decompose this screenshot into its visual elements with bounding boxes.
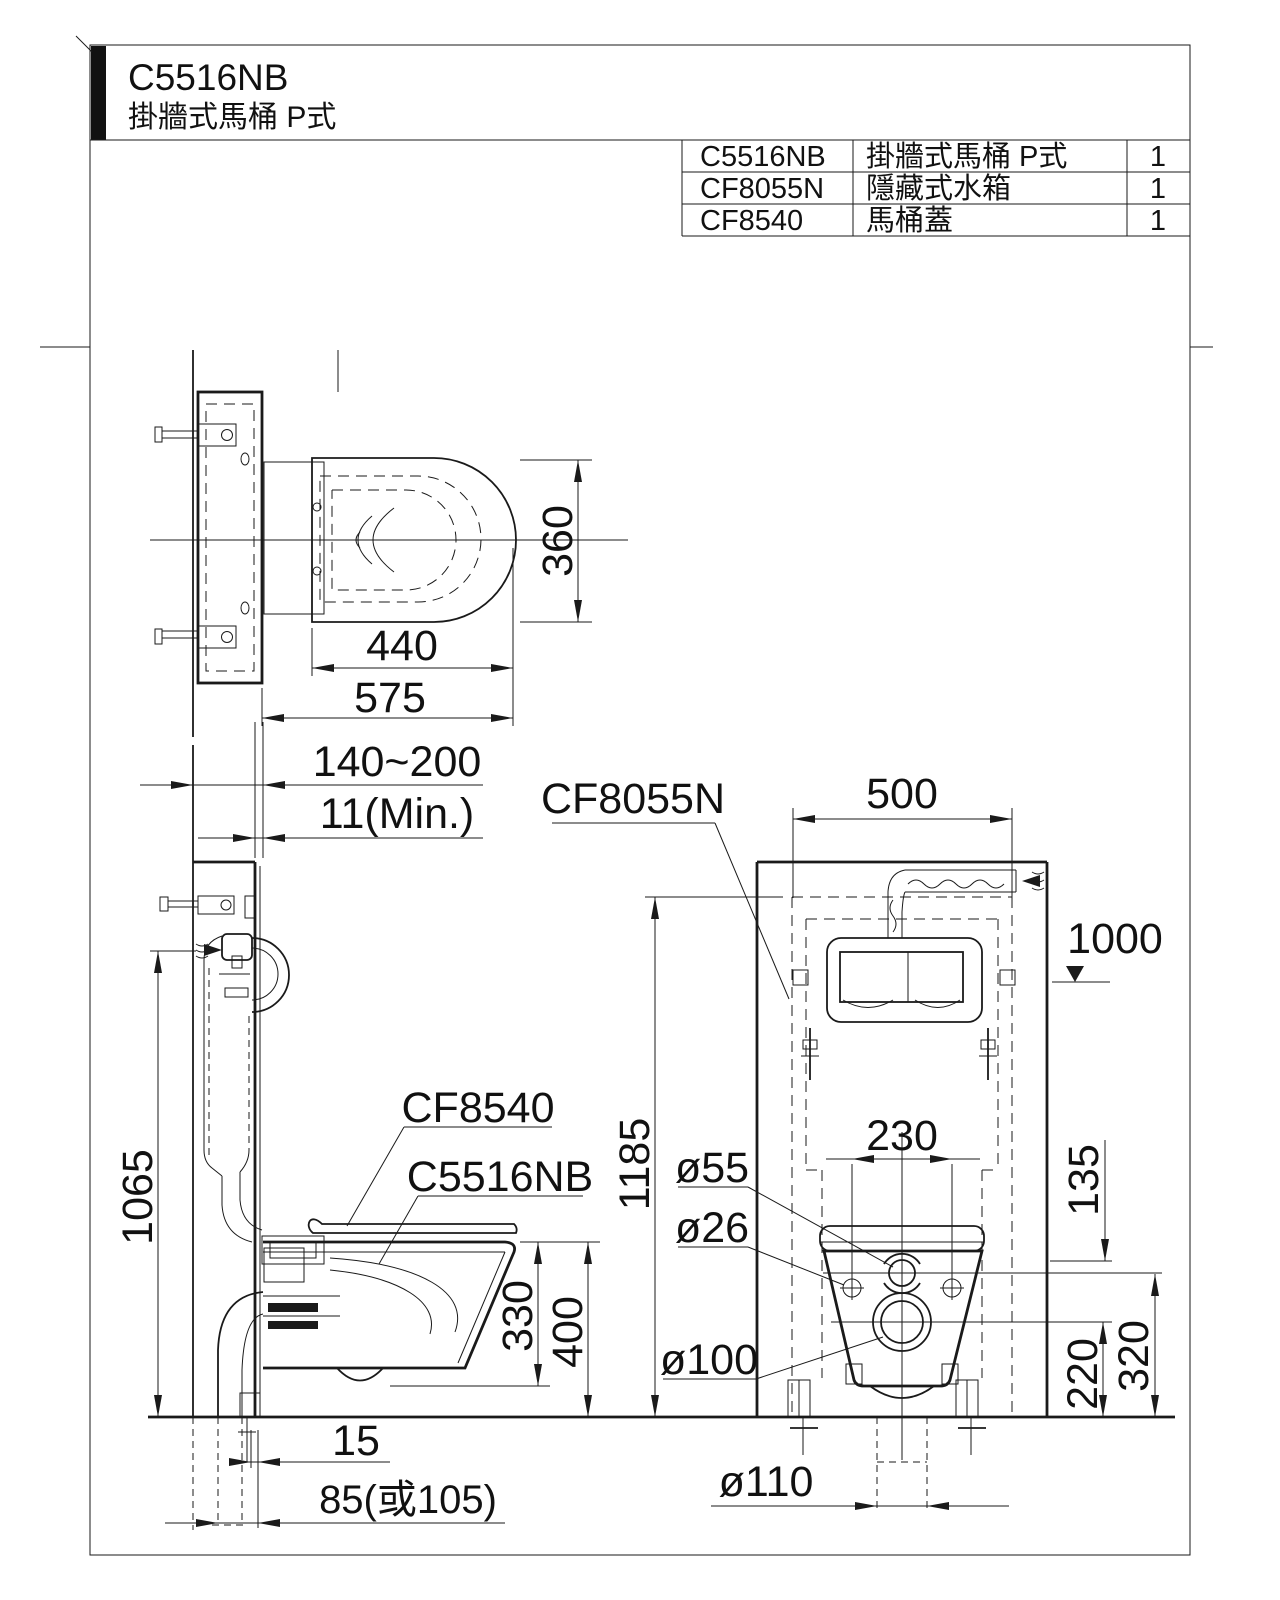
dim-bowl-height: 330 — [494, 1280, 542, 1352]
technical-drawing: C5516NB 掛牆式馬桶 P式 C5516NB 掛牆式馬桶 P式 1 CF80… — [0, 0, 1280, 1600]
page-title: C5516NB — [128, 57, 288, 98]
dim-actuator-height: 1065 — [114, 1149, 162, 1245]
table-row: CF8055N 隱藏式水箱 1 — [700, 172, 1166, 205]
dim-drain-height: 220 — [1059, 1338, 1107, 1410]
title-block-bar — [91, 46, 106, 140]
dim-supply-height: 1000 — [1067, 915, 1163, 963]
dim-overall-depth: 575 — [354, 674, 426, 722]
label-bowl: C5516NB — [407, 1153, 593, 1201]
side-view: 140~200 11(Min.) — [114, 722, 600, 1530]
dim-bowl-width: 360 — [534, 505, 582, 577]
dim-wall-depth-range: 140~200 — [313, 738, 482, 786]
label-tank: CF8055N — [541, 775, 725, 823]
dim-panel-min: 11(Min.) — [320, 790, 475, 838]
part-qty: 1 — [1150, 173, 1166, 205]
dim-bowl-length: 440 — [366, 622, 438, 670]
dim-rim-height: 400 — [544, 1296, 592, 1368]
label-seat: CF8540 — [402, 1084, 555, 1132]
label-drain-dia: ø100 — [660, 1336, 758, 1384]
dim-outlet-offset: 15 — [332, 1417, 380, 1465]
part-code: C5516NB — [700, 141, 826, 173]
page-subtitle: 掛牆式馬桶 P式 — [128, 101, 336, 134]
part-qty: 1 — [1150, 141, 1166, 173]
part-code: CF8055N — [700, 173, 824, 205]
dim-frame-width: 500 — [866, 770, 938, 818]
table-row: CF8540 馬桶蓋 1 — [700, 204, 1166, 237]
label-inlet-dia: ø55 — [675, 1144, 749, 1192]
part-code: CF8540 — [700, 205, 803, 237]
dim-inlet-height: 320 — [1110, 1320, 1158, 1392]
plan-view: 360 440 575 — [150, 350, 628, 737]
table-row: C5516NB 掛牆式馬桶 P式 1 — [700, 140, 1166, 173]
part-qty: 1 — [1150, 205, 1166, 237]
title-block: C5516NB 掛牆式馬桶 P式 — [128, 57, 336, 134]
part-name: 馬桶蓋 — [866, 204, 953, 237]
dim-frame-height: 1185 — [611, 1118, 659, 1210]
label-bolt-hole-dia: ø26 — [675, 1204, 749, 1252]
drawing-sheet: C5516NB 掛牆式馬桶 P式 C5516NB 掛牆式馬桶 P式 1 CF80… — [0, 0, 1280, 1600]
parts-table: C5516NB 掛牆式馬桶 P式 1 CF8055N 隱藏式水箱 1 CF854… — [682, 140, 1190, 237]
dim-soil-pipe-dia: ø110 — [719, 1458, 814, 1506]
level-marker-icon — [1066, 966, 1084, 982]
dim-bracket-drop: 135 — [1060, 1144, 1108, 1216]
front-view: ø110 CF8055N 500 1000 1185 230 135 — [541, 770, 1163, 1510]
part-name: 掛牆式馬桶 P式 — [866, 140, 1067, 173]
dim-outlet-offset-alt: 85(或105) — [319, 1478, 497, 1522]
part-name: 隱藏式水箱 — [866, 172, 1011, 205]
dim-bolt-spacing: 230 — [866, 1112, 938, 1160]
